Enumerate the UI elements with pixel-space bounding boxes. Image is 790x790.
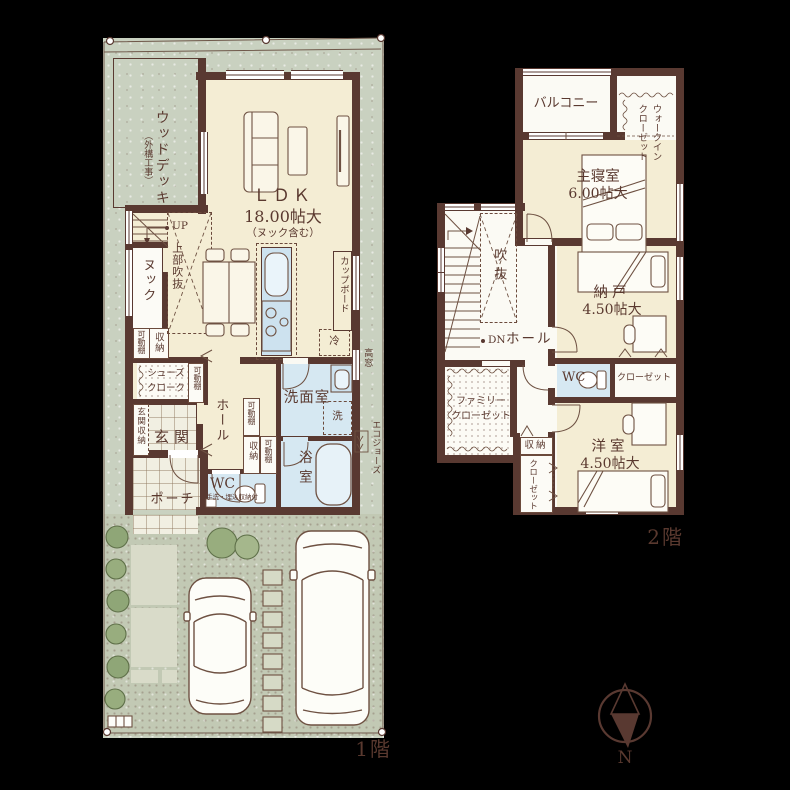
fridge-label: 冷	[319, 335, 350, 348]
porch-label: ポーチ	[146, 492, 200, 508]
nook-label: ヌック	[139, 258, 155, 303]
washroom-label: 洗面室	[277, 389, 337, 407]
wood-deck-label: ウッドデッキ （外構工事）	[141, 88, 170, 228]
storage-a-label: 収納	[152, 332, 164, 353]
compass-icon	[599, 684, 651, 748]
closet-a-label: クローゼット	[613, 373, 675, 384]
void-label: 吹抜	[490, 248, 506, 286]
entrance-label: 玄関	[148, 428, 200, 447]
floor1-label: 1階	[338, 737, 392, 762]
high-window-label: 高窓	[361, 348, 372, 368]
wic-label: ウォークイン クローゼット	[634, 92, 663, 172]
bathroom-floor	[281, 441, 352, 507]
dn-label: DN	[488, 334, 506, 347]
wc-label-1f: WC	[210, 476, 235, 494]
balcony-label: バルコニー	[524, 96, 608, 112]
storage-b-label: 収納	[246, 441, 257, 461]
ldk-label: ＬＤＫ 18.00帖大 （ヌック含む）	[213, 186, 353, 240]
master-bedroom-label: 主寝室 6.00帖大	[560, 168, 636, 204]
western-room-label: 洋室 4.50帖大	[568, 438, 652, 474]
wc-label-2f: WC	[562, 370, 585, 386]
compass-north-label: N	[605, 748, 645, 769]
washer-label: 洗	[323, 410, 352, 423]
kitchen-counter	[261, 247, 292, 356]
floor2-label: 2階	[630, 525, 684, 550]
up-label: UP	[172, 220, 188, 233]
upper-void-label: 上部吹抜	[170, 242, 184, 290]
eco-boiler-label: エコジョーズ	[369, 420, 380, 474]
family-closet-label: ファミリー クローゼット	[446, 394, 516, 424]
bathroom-label: 浴室	[295, 450, 312, 489]
entrance-storage-label: 玄関収納	[135, 407, 146, 445]
closet-b-label: クローゼット	[527, 459, 538, 510]
cupboard-label: カップボード	[337, 256, 349, 313]
storage-room-label: 納戸 4.50帖大	[570, 284, 654, 320]
driveway	[104, 514, 383, 736]
shoes-closet-label: シューズ クローク	[143, 366, 189, 396]
hall-label-1f: ホール	[212, 398, 228, 443]
hall-label-2f: ホール	[506, 331, 553, 348]
shelf-c-label: 可動棚	[246, 401, 256, 425]
wc-note-label: 手洗・埋込収納付	[206, 493, 258, 501]
shelf-d-label: 可動棚	[263, 439, 273, 463]
storage-2f-label: 収納	[518, 440, 554, 452]
porch-walkway	[133, 515, 198, 534]
shelf-a-label: 可動棚	[136, 330, 146, 354]
floor-plan-canvas: ウッドデッキ （外構工事） ＬＤＫ 18.00帖大 （ヌック含む） UP 上部吹…	[0, 0, 790, 790]
shelf-b-label: 可動棚	[192, 366, 202, 390]
